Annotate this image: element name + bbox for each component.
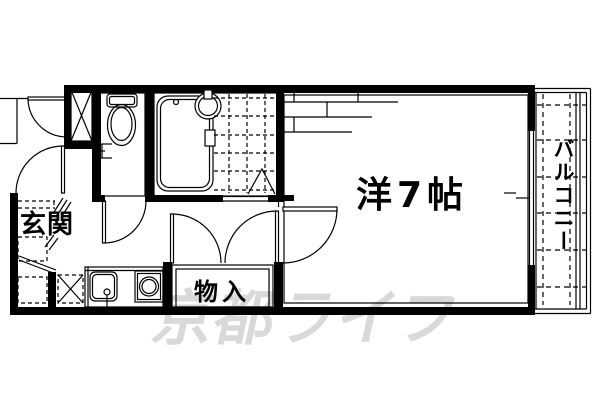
shoe-cabinet [71, 90, 92, 141]
floorplan: 玄関 洋7帖 物入 バルコニー 京都ライフ [0, 0, 600, 400]
kitchen-sink [90, 272, 117, 307]
toilet-door [103, 201, 147, 243]
faucet [104, 289, 110, 295]
storage-door-left-arc [172, 214, 221, 263]
porch-door-leaf [28, 97, 67, 100]
wash-basin [195, 90, 221, 119]
room-shelf-marks [284, 93, 398, 132]
entrance-door-arc [16, 146, 63, 193]
label-balcony: バルコニー [548, 138, 578, 253]
tub-drain [174, 100, 179, 105]
label-main-room: 洋7帖 [312, 166, 512, 218]
entrance-door-leaf [62, 146, 65, 193]
storage-door-right-arc [225, 211, 277, 263]
label-genkan: 玄関 [20, 204, 74, 241]
porch-door-arc [28, 99, 67, 138]
storage-door-right-leaf [276, 211, 279, 263]
watermark-text: 京都ライフ [146, 270, 469, 357]
washer-space [58, 275, 83, 303]
toilet-fixture [99, 94, 137, 158]
entrance-porch [0, 97, 67, 193]
fridge-space [18, 277, 47, 303]
storage-door-left-leaf [171, 214, 174, 263]
